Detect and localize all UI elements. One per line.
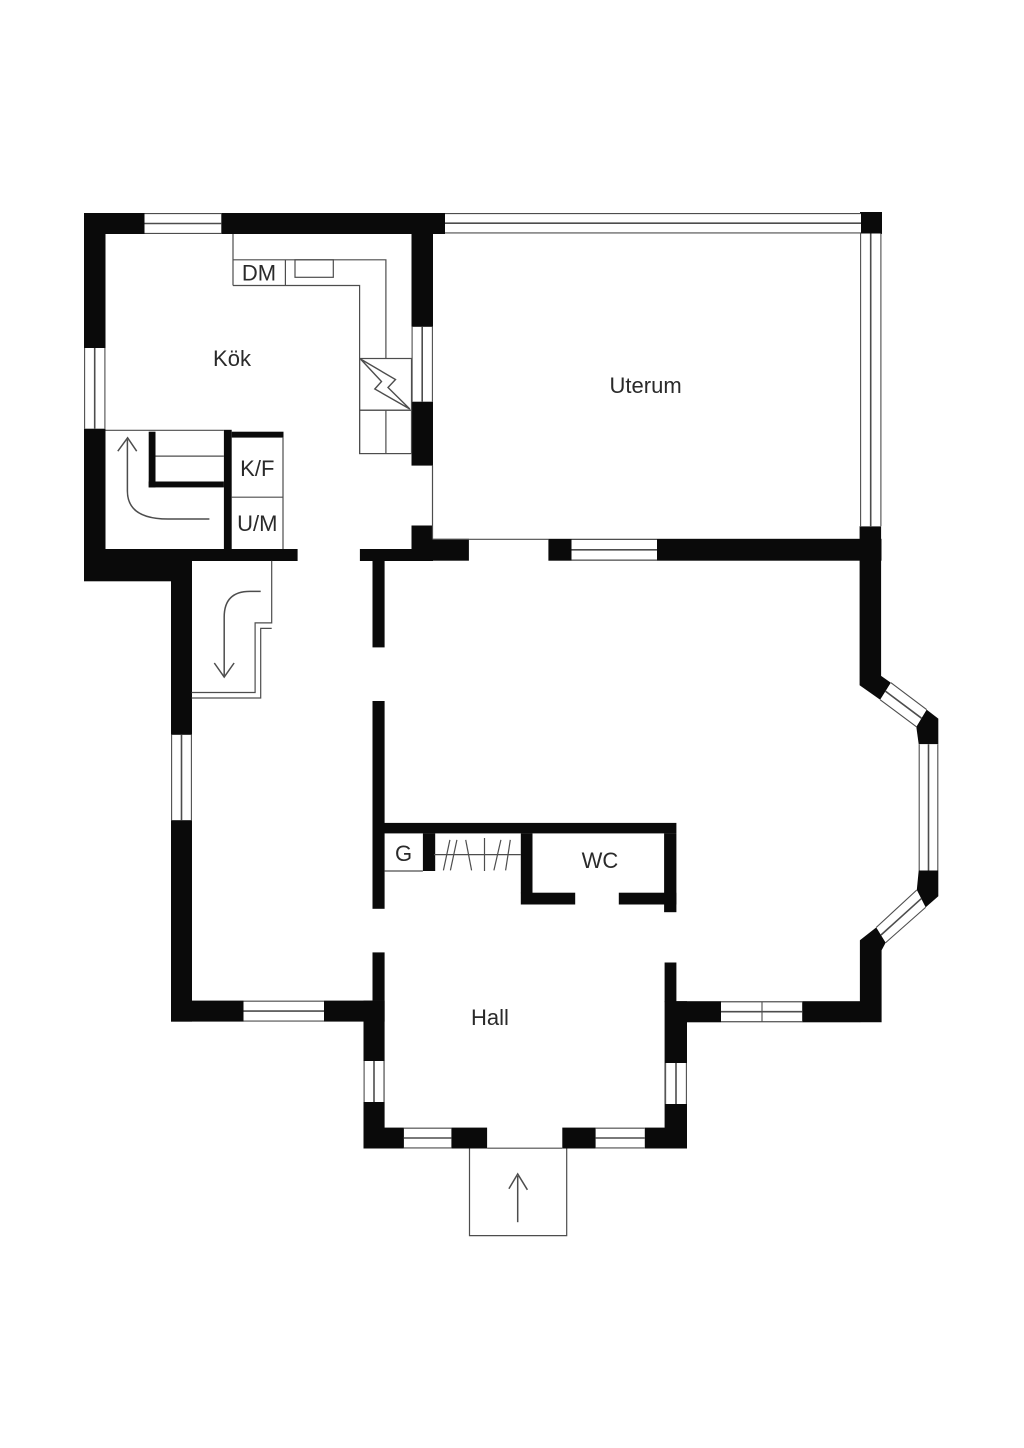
svg-text:Kök: Kök — [213, 346, 252, 371]
svg-text:WC: WC — [582, 848, 619, 873]
svg-text:DM: DM — [242, 261, 276, 286]
svg-text:Uterum: Uterum — [610, 373, 682, 398]
svg-text:K/F: K/F — [240, 456, 274, 481]
svg-text:G: G — [395, 841, 412, 866]
svg-text:Hall: Hall — [471, 1005, 509, 1030]
svg-text:U/M: U/M — [237, 511, 277, 536]
